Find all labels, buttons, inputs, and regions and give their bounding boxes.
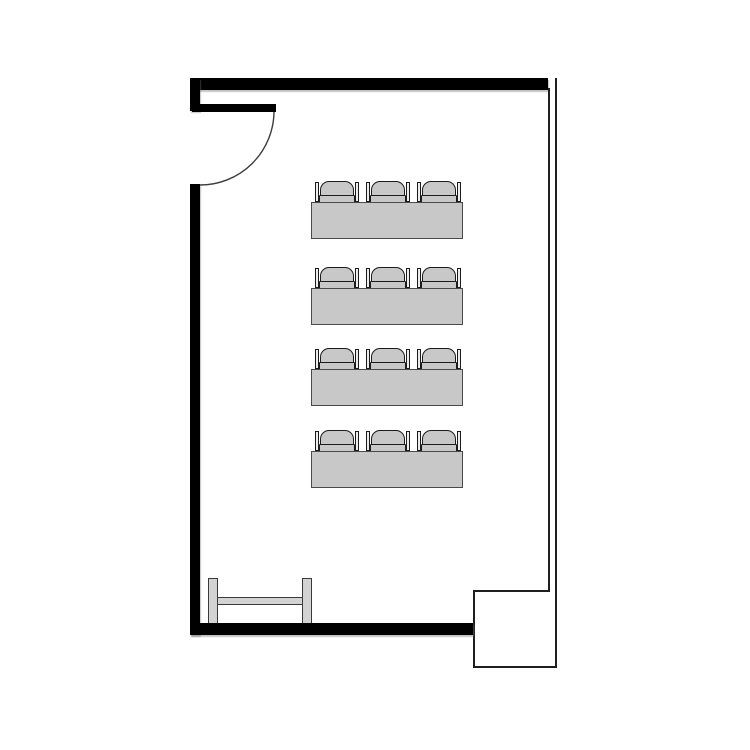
chair-armrest-right	[457, 349, 461, 369]
chair-armrest-right	[355, 349, 359, 369]
chair-armrest-left	[417, 349, 421, 369]
alcove-left-edge	[473, 590, 475, 668]
chair	[366, 267, 410, 289]
wall-top	[190, 78, 548, 90]
chair-armrest-right	[457, 431, 461, 451]
chair-armrest-left	[417, 182, 421, 202]
alcove-bottom-edge	[473, 666, 557, 668]
chair-armrest-left	[366, 268, 370, 288]
chair-armrest-right	[406, 182, 410, 202]
desk-row-2	[311, 288, 463, 325]
chair	[315, 348, 359, 370]
chair-armrest-left	[315, 431, 319, 451]
chair-armrest-right	[406, 349, 410, 369]
chair-armrest-left	[417, 431, 421, 451]
bench-post-right	[302, 578, 312, 624]
desk-row-3	[311, 369, 463, 406]
wall-right-outer	[555, 78, 557, 668]
chair-armrest-right	[355, 431, 359, 451]
chair-armrest-right	[406, 431, 410, 451]
chair-armrest-left	[315, 268, 319, 288]
chair	[315, 430, 359, 452]
chair-armrest-left	[315, 349, 319, 369]
chair	[417, 430, 461, 452]
door-panel	[192, 104, 276, 112]
bench-post-left	[208, 578, 218, 624]
bench-bar	[208, 597, 312, 605]
alcove-top-edge	[473, 590, 550, 592]
chair	[366, 181, 410, 203]
chair-armrest-left	[315, 182, 319, 202]
chair	[417, 267, 461, 289]
chair	[315, 267, 359, 289]
chair-armrest-right	[355, 182, 359, 202]
desk-row-1	[311, 202, 463, 239]
wall-bottom	[190, 623, 473, 635]
wall-left-lower	[190, 184, 200, 635]
chair-armrest-right	[457, 182, 461, 202]
chair-armrest-right	[457, 268, 461, 288]
chair-armrest-right	[355, 268, 359, 288]
chair	[417, 348, 461, 370]
chair	[366, 348, 410, 370]
chair	[315, 181, 359, 203]
chair	[417, 181, 461, 203]
floor-plan-canvas	[0, 0, 750, 750]
chair	[366, 430, 410, 452]
chair-armrest-left	[417, 268, 421, 288]
desk-row-4	[311, 451, 463, 488]
wall-right-inner	[548, 88, 550, 591]
chair-armrest-left	[366, 182, 370, 202]
chair-armrest-left	[366, 431, 370, 451]
chair-armrest-left	[366, 349, 370, 369]
chair-armrest-right	[406, 268, 410, 288]
